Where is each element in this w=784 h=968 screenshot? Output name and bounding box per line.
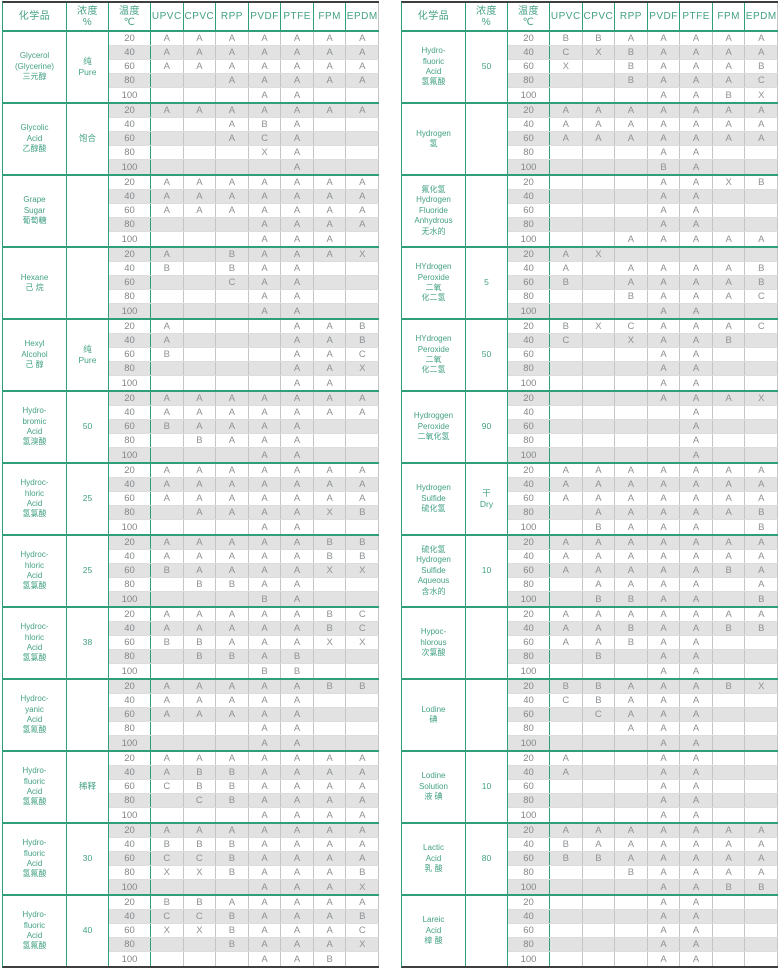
rating-cell: A xyxy=(216,204,249,217)
rating-cell: A xyxy=(281,736,314,750)
rating-cell: B xyxy=(184,896,217,909)
temperature-value: 40 xyxy=(109,550,151,563)
rating-cell xyxy=(583,910,616,923)
chemical-group: HYdrogen Peroxide 二氧 化二氢5020BXCAAAC40CXA… xyxy=(402,318,778,390)
rating-cell: A xyxy=(680,492,713,505)
rating-cell: B xyxy=(583,592,616,606)
temperature-value: 60 xyxy=(109,492,151,505)
rating-cell: A xyxy=(713,608,746,621)
concentration-value: 5 xyxy=(466,248,508,318)
rating-cell xyxy=(346,650,379,663)
rating-cell: A xyxy=(648,924,681,937)
rating-cell: A xyxy=(249,88,282,102)
rating-cell: A xyxy=(346,104,379,117)
rating-cell xyxy=(745,752,778,765)
rating-cell: A xyxy=(713,866,746,879)
table-row: 60AA xyxy=(508,780,778,794)
rating-cell xyxy=(184,74,217,87)
rating-cell: A xyxy=(680,290,713,303)
table-row: 20AAAAAAA xyxy=(109,32,379,46)
temperature-value: 100 xyxy=(109,736,151,750)
rating-cell xyxy=(151,276,184,289)
rating-cell: A xyxy=(314,492,347,505)
rating-cell: A xyxy=(680,550,713,563)
rating-cell xyxy=(216,362,249,375)
temperature-value: 80 xyxy=(508,290,550,303)
rating-cell: X xyxy=(314,564,347,577)
rating-cell: A xyxy=(346,392,379,405)
group-rows: 20AAAAAAA40AAAAAAA60AAAAAAA80AAAAAB100BA… xyxy=(508,464,778,534)
rating-cell: A xyxy=(314,32,347,45)
rating-cell xyxy=(745,736,778,750)
table-row: 20AAAAAAA xyxy=(109,104,379,118)
temperature-value: 20 xyxy=(508,464,550,477)
rating-cell xyxy=(151,722,184,735)
rating-cell xyxy=(184,160,217,174)
temperature-value: 100 xyxy=(508,592,550,606)
rating-cell: A xyxy=(648,376,681,390)
rating-cell: A xyxy=(713,852,746,865)
rating-cell: A xyxy=(281,780,314,793)
rating-cell: A xyxy=(680,736,713,750)
rating-cell xyxy=(151,434,184,447)
chemical-group: Lactic Acid 乳 酸8020AAAAAAA40BAAAAAA60BBA… xyxy=(402,822,778,894)
rating-cell: B xyxy=(151,348,184,361)
rating-cell xyxy=(583,262,616,275)
rating-cell: A xyxy=(249,104,282,117)
temperature-value: 100 xyxy=(109,304,151,318)
rating-cell: A xyxy=(281,622,314,635)
rating-cell: A xyxy=(216,434,249,447)
rating-cell: A xyxy=(281,708,314,721)
rating-cell: A xyxy=(184,204,217,217)
rating-cell: A xyxy=(713,60,746,73)
chemical-name: Lodine Solution 液 碘 xyxy=(402,752,466,822)
rating-cell: C xyxy=(249,132,282,145)
rating-cell: A xyxy=(249,924,282,937)
rating-cell: A xyxy=(680,506,713,519)
rating-cell: X xyxy=(151,924,184,937)
rating-cell xyxy=(216,320,249,333)
table-row: 60XXBAAAC xyxy=(109,924,379,938)
rating-cell xyxy=(745,910,778,923)
rating-cell: A xyxy=(314,190,347,203)
rating-cell: B xyxy=(583,650,616,663)
group-rows: 20AAAB40AAAB60BAAC80AAX100AA xyxy=(109,320,379,390)
rating-cell: A xyxy=(583,564,616,577)
rating-cell xyxy=(550,664,583,678)
rating-cell: B xyxy=(745,276,778,289)
rating-cell xyxy=(151,376,184,390)
rating-cell: A xyxy=(745,232,778,246)
rating-cell: A xyxy=(680,592,713,606)
header-material-ptfe: PTFE xyxy=(680,3,713,30)
table-row: 100BA xyxy=(508,160,778,174)
rating-cell: A xyxy=(216,708,249,721)
chemical-name: HYdrogen Peroxide 二氧 化二氢 xyxy=(402,320,466,390)
rating-cell: A xyxy=(281,392,314,405)
temperature-value: 60 xyxy=(508,420,550,433)
rating-cell: A xyxy=(151,766,184,779)
rating-cell: A xyxy=(281,608,314,621)
rating-cell: A xyxy=(680,636,713,649)
rating-cell xyxy=(216,348,249,361)
rating-cell: A xyxy=(346,492,379,505)
rating-cell: B xyxy=(745,520,778,534)
rating-cell: A xyxy=(249,852,282,865)
rating-cell xyxy=(745,334,778,347)
rating-cell: B xyxy=(184,636,217,649)
rating-cell xyxy=(615,794,648,807)
rating-cell: A xyxy=(151,478,184,491)
chemical-group: Hydrogen Sulfide 硫化氢干 Dry20AAAAAAA40AAAA… xyxy=(402,462,778,534)
temperature-value: 80 xyxy=(109,794,151,807)
table-row: 60CBBAAAA xyxy=(109,780,379,794)
rating-cell: A xyxy=(550,550,583,563)
rating-cell: A xyxy=(680,752,713,765)
rating-cell: A xyxy=(745,32,778,45)
rating-cell: B xyxy=(550,320,583,333)
rating-cell: B xyxy=(346,536,379,549)
rating-cell: A xyxy=(281,506,314,519)
temperature-value: 80 xyxy=(109,650,151,663)
rating-cell: A xyxy=(281,204,314,217)
rating-cell xyxy=(648,420,681,433)
rating-cell: A xyxy=(346,60,379,73)
temperature-value: 80 xyxy=(508,578,550,591)
rating-cell: A xyxy=(550,118,583,131)
rating-cell: B xyxy=(550,32,583,45)
table-row: 60AA xyxy=(508,204,778,218)
rating-cell: A xyxy=(216,464,249,477)
rating-cell: A xyxy=(281,592,314,606)
rating-cell xyxy=(713,376,746,390)
rating-cell: A xyxy=(314,74,347,87)
rating-cell xyxy=(151,146,184,159)
rating-cell: C xyxy=(745,74,778,87)
rating-cell xyxy=(184,232,217,246)
rating-cell: B xyxy=(216,780,249,793)
rating-cell: B xyxy=(216,852,249,865)
rating-cell xyxy=(216,722,249,735)
rating-cell: A xyxy=(615,824,648,837)
temperature-value: 20 xyxy=(508,248,550,261)
rating-cell: A xyxy=(680,334,713,347)
rating-cell: A xyxy=(281,262,314,275)
rating-cell: B xyxy=(583,680,616,693)
chemical-group: 硫化氢 Hydrogen Sulfide Aqueous 含水的1020AAAA… xyxy=(402,534,778,606)
rating-cell xyxy=(249,320,282,333)
table-row: 80AAAAAB xyxy=(508,506,778,520)
rating-cell: A xyxy=(184,694,217,707)
rating-cell xyxy=(583,276,616,289)
rating-cell: A xyxy=(314,176,347,189)
concentration-value: 稀释 xyxy=(67,752,109,822)
rating-cell: A xyxy=(281,896,314,909)
rating-cell: A xyxy=(680,320,713,333)
rating-cell: A xyxy=(281,32,314,45)
temperature-value: 20 xyxy=(508,320,550,333)
table-row: 40ABA xyxy=(109,118,379,132)
rating-cell xyxy=(249,348,282,361)
rating-cell: A xyxy=(680,608,713,621)
rating-cell: A xyxy=(745,852,778,865)
rating-cell: A xyxy=(648,564,681,577)
rating-cell xyxy=(583,218,616,231)
rating-cell xyxy=(184,334,217,347)
table-row: 40AAAAA xyxy=(109,694,379,708)
rating-cell: A xyxy=(346,176,379,189)
temperature-value: 40 xyxy=(109,406,151,419)
rating-cell xyxy=(151,160,184,174)
header-material-fpm: FPM xyxy=(314,3,347,30)
rating-cell: A xyxy=(680,650,713,663)
chemical-name: Hydro- fluoric Acid 氢氟酸 xyxy=(3,752,67,822)
rating-cell: A xyxy=(314,320,347,333)
rating-cell: A xyxy=(583,550,616,563)
rating-cell: A xyxy=(745,578,778,591)
rating-cell: X xyxy=(745,680,778,693)
rating-cell: A xyxy=(713,392,746,405)
table-row: 40AAAAAAA xyxy=(508,118,778,132)
chemical-name: Hydroggen Peroxide 二氧化氢 xyxy=(402,392,466,462)
rating-cell: A xyxy=(249,708,282,721)
rating-cell: A xyxy=(151,60,184,73)
rating-cell xyxy=(648,248,681,261)
rating-cell xyxy=(745,420,778,433)
rating-cell: B xyxy=(583,32,616,45)
rating-cell: A xyxy=(314,46,347,59)
rating-cell: A xyxy=(249,794,282,807)
rating-cell: A xyxy=(680,362,713,375)
group-rows: 20AAAAAAA40AAAAAAA60AAAAABA80AAAAA100BBA… xyxy=(508,536,778,606)
rating-cell: A xyxy=(648,276,681,289)
header-concentration: 浓度 % xyxy=(466,3,508,30)
temperature-value: 20 xyxy=(508,680,550,693)
table-row: 20AAAAAAA xyxy=(508,104,778,118)
rating-cell: A xyxy=(648,304,681,318)
rating-cell: A xyxy=(615,232,648,246)
chemical-name: 硫化氢 Hydrogen Sulfide Aqueous 含水的 xyxy=(402,536,466,606)
rating-cell: X xyxy=(314,636,347,649)
rating-cell xyxy=(314,592,347,606)
resistance-table-right: 化学品 浓度 % 温度 ℃ UPVC CPVC RPP PVDF PTFE FP… xyxy=(401,1,778,968)
rating-cell: A xyxy=(648,938,681,951)
rating-cell xyxy=(314,262,347,275)
rating-cell: X xyxy=(314,506,347,519)
temperature-value: 40 xyxy=(109,118,151,131)
table-row: 60AAAAABA xyxy=(508,564,778,578)
temperature-value: 20 xyxy=(109,464,151,477)
rating-cell xyxy=(583,60,616,73)
chemical-group: Hydrogen 氢20AAAAAAA40AAAAAAA60AAAAAAA80A… xyxy=(402,102,778,174)
rating-cell: B xyxy=(151,262,184,275)
rating-cell: A xyxy=(346,464,379,477)
rating-cell xyxy=(550,506,583,519)
rating-cell xyxy=(314,420,347,433)
rating-cell: A xyxy=(680,464,713,477)
rating-cell: A xyxy=(550,536,583,549)
rating-cell: A xyxy=(346,838,379,851)
rating-cell xyxy=(745,938,778,951)
rating-cell xyxy=(216,232,249,246)
temperature-value: 80 xyxy=(508,362,550,375)
rating-cell xyxy=(745,146,778,159)
rating-cell: A xyxy=(680,46,713,59)
rating-cell: A xyxy=(346,896,379,909)
rating-cell: A xyxy=(216,176,249,189)
rating-cell xyxy=(151,218,184,231)
rating-cell xyxy=(583,406,616,419)
rating-cell: A xyxy=(648,636,681,649)
rating-cell: A xyxy=(281,218,314,231)
rating-cell xyxy=(745,204,778,217)
rating-cell xyxy=(346,262,379,275)
table-row: 80AAA xyxy=(508,722,778,736)
table-row: 80CBAAAA xyxy=(109,794,379,808)
rating-cell: A xyxy=(346,32,379,45)
rating-cell: A xyxy=(216,118,249,131)
rating-cell xyxy=(346,708,379,721)
table-row: 100A xyxy=(508,448,778,462)
rating-cell: A xyxy=(713,118,746,131)
concentration-value xyxy=(466,104,508,174)
rating-cell xyxy=(583,808,616,822)
rating-cell xyxy=(216,808,249,822)
temperature-value: 100 xyxy=(508,808,550,822)
rating-cell: A xyxy=(249,392,282,405)
rating-cell xyxy=(216,334,249,347)
rating-cell xyxy=(745,694,778,707)
rating-cell xyxy=(151,88,184,102)
rating-cell xyxy=(583,334,616,347)
temperature-value: 40 xyxy=(508,766,550,779)
chemical-group: Hydro- fluoric Acid 氢氟酸稀释20AAAAAAA40ABBA… xyxy=(3,750,379,822)
header-material-fpm: FPM xyxy=(713,3,746,30)
rating-cell: A xyxy=(314,362,347,375)
rating-cell xyxy=(745,924,778,937)
rating-cell xyxy=(151,794,184,807)
rating-cell xyxy=(583,146,616,159)
rating-cell: B xyxy=(346,334,379,347)
rating-cell xyxy=(583,938,616,951)
rating-cell: A xyxy=(680,132,713,145)
temperature-value: 100 xyxy=(109,880,151,894)
rating-cell xyxy=(346,276,379,289)
temperature-value: 80 xyxy=(109,434,151,447)
rating-cell: B xyxy=(550,852,583,865)
rating-cell xyxy=(249,160,282,174)
group-rows: 20AAAAABB40AAAAABB60BAAAAXX80BBAA100BA xyxy=(109,536,379,606)
group-rows: 20AAAAAAA40AAAAAAA60AAAAAAA80AA100BA xyxy=(508,104,778,174)
temperature-value: 20 xyxy=(109,824,151,837)
chemical-group: HYdrogen Peroxide 二氧 化二氢520AX40AAAAAB60B… xyxy=(402,246,778,318)
rating-cell: A xyxy=(648,824,681,837)
temperature-value: 100 xyxy=(109,232,151,246)
chemical-name: Hexane 己 烷 xyxy=(3,248,67,318)
rating-cell: B xyxy=(184,578,217,591)
rating-cell xyxy=(151,118,184,131)
table-row: 80XXBAAAB xyxy=(109,866,379,880)
rating-cell: A xyxy=(314,780,347,793)
rating-cell: A xyxy=(281,924,314,937)
rating-cell: A xyxy=(550,636,583,649)
table-row: 100AA xyxy=(109,736,379,750)
temperature-value: 80 xyxy=(508,650,550,663)
table-row: 80BAAAA xyxy=(508,866,778,880)
rating-cell: A xyxy=(648,88,681,102)
table-row: 40BAAAAAA xyxy=(508,838,778,852)
rating-cell: A xyxy=(680,146,713,159)
rating-cell xyxy=(583,896,616,909)
table-row: 100BBAAB xyxy=(508,592,778,606)
rating-cell: A xyxy=(713,132,746,145)
table-row: 100AA xyxy=(508,304,778,318)
rating-cell: A xyxy=(713,492,746,505)
rating-cell: A xyxy=(281,104,314,117)
rating-cell: A xyxy=(615,492,648,505)
rating-cell: A xyxy=(249,780,282,793)
rating-cell: A xyxy=(216,190,249,203)
chemical-group: Hydro- fluoric Acid 氢氟酸3020AAAAAAA40BBBA… xyxy=(3,822,379,894)
table-header: 化学品 浓度 % 温度 ℃ UPVC CPVC RPP PVDF PTFE FP… xyxy=(402,3,778,32)
rating-cell: A xyxy=(249,448,282,462)
rating-cell: A xyxy=(680,824,713,837)
rating-cell xyxy=(615,664,648,678)
rating-cell: A xyxy=(713,464,746,477)
rating-cell: A xyxy=(680,448,713,462)
rating-cell: A xyxy=(550,824,583,837)
rating-cell xyxy=(184,146,217,159)
rating-cell: A xyxy=(550,478,583,491)
temperature-value: 80 xyxy=(109,722,151,735)
chemical-name: Glycolic Acid 乙醇酸 xyxy=(3,104,67,174)
rating-cell xyxy=(550,304,583,318)
rating-cell: A xyxy=(713,232,746,246)
rating-cell: A xyxy=(680,392,713,405)
chemical-group: Glycolic Acid 乙醇酸饱合20AAAAAAA40ABA60ACA80… xyxy=(3,102,379,174)
rating-cell: A xyxy=(615,564,648,577)
rating-cell xyxy=(680,248,713,261)
rating-cell: A xyxy=(281,132,314,145)
rating-cell: A xyxy=(680,708,713,721)
rating-cell: B xyxy=(615,74,648,87)
rating-cell xyxy=(615,434,648,447)
rating-cell: A xyxy=(314,752,347,765)
chemical-name: Hydro- fluoric Acid 氢氟酸 xyxy=(3,896,67,966)
header-material-pvdf: PVDF xyxy=(249,3,282,30)
rating-cell: B xyxy=(216,838,249,851)
rating-cell: A xyxy=(745,492,778,505)
rating-cell: A xyxy=(314,852,347,865)
rating-cell xyxy=(550,578,583,591)
rating-cell: B xyxy=(281,664,314,678)
rating-cell xyxy=(713,736,746,750)
temperature-value: 40 xyxy=(109,190,151,203)
rating-cell: A xyxy=(550,766,583,779)
rating-cell: A xyxy=(216,824,249,837)
rating-cell xyxy=(550,592,583,606)
rating-cell: B xyxy=(216,910,249,923)
rating-cell: A xyxy=(680,622,713,635)
table-row: 40AAAAAAA xyxy=(109,406,379,420)
rating-cell: A xyxy=(648,608,681,621)
rating-cell xyxy=(615,160,648,174)
rating-cell xyxy=(550,160,583,174)
rating-cell xyxy=(314,708,347,721)
rating-cell: A xyxy=(648,766,681,779)
rating-cell: A xyxy=(648,910,681,923)
